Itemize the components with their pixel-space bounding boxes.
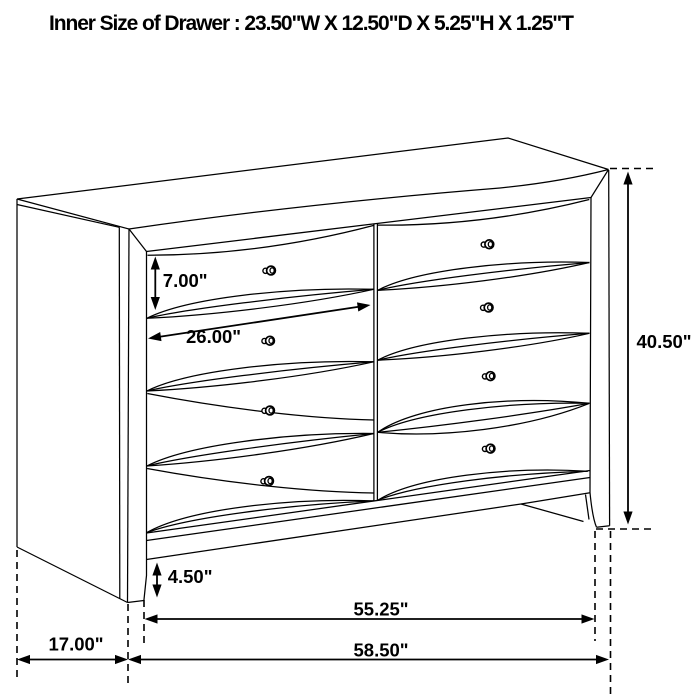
svg-text:26.00": 26.00" (186, 326, 241, 347)
svg-text:Inner Size of Drawer : 23.50"W: Inner Size of Drawer : 23.50"W X 12.50"D… (49, 12, 574, 35)
svg-text:17.00": 17.00" (49, 634, 104, 655)
svg-text:4.50": 4.50" (168, 566, 213, 587)
svg-text:58.50": 58.50" (354, 640, 409, 661)
svg-text:55.25": 55.25" (354, 599, 409, 620)
svg-text:7.00": 7.00" (163, 270, 208, 291)
svg-text:40.50": 40.50" (637, 331, 692, 352)
